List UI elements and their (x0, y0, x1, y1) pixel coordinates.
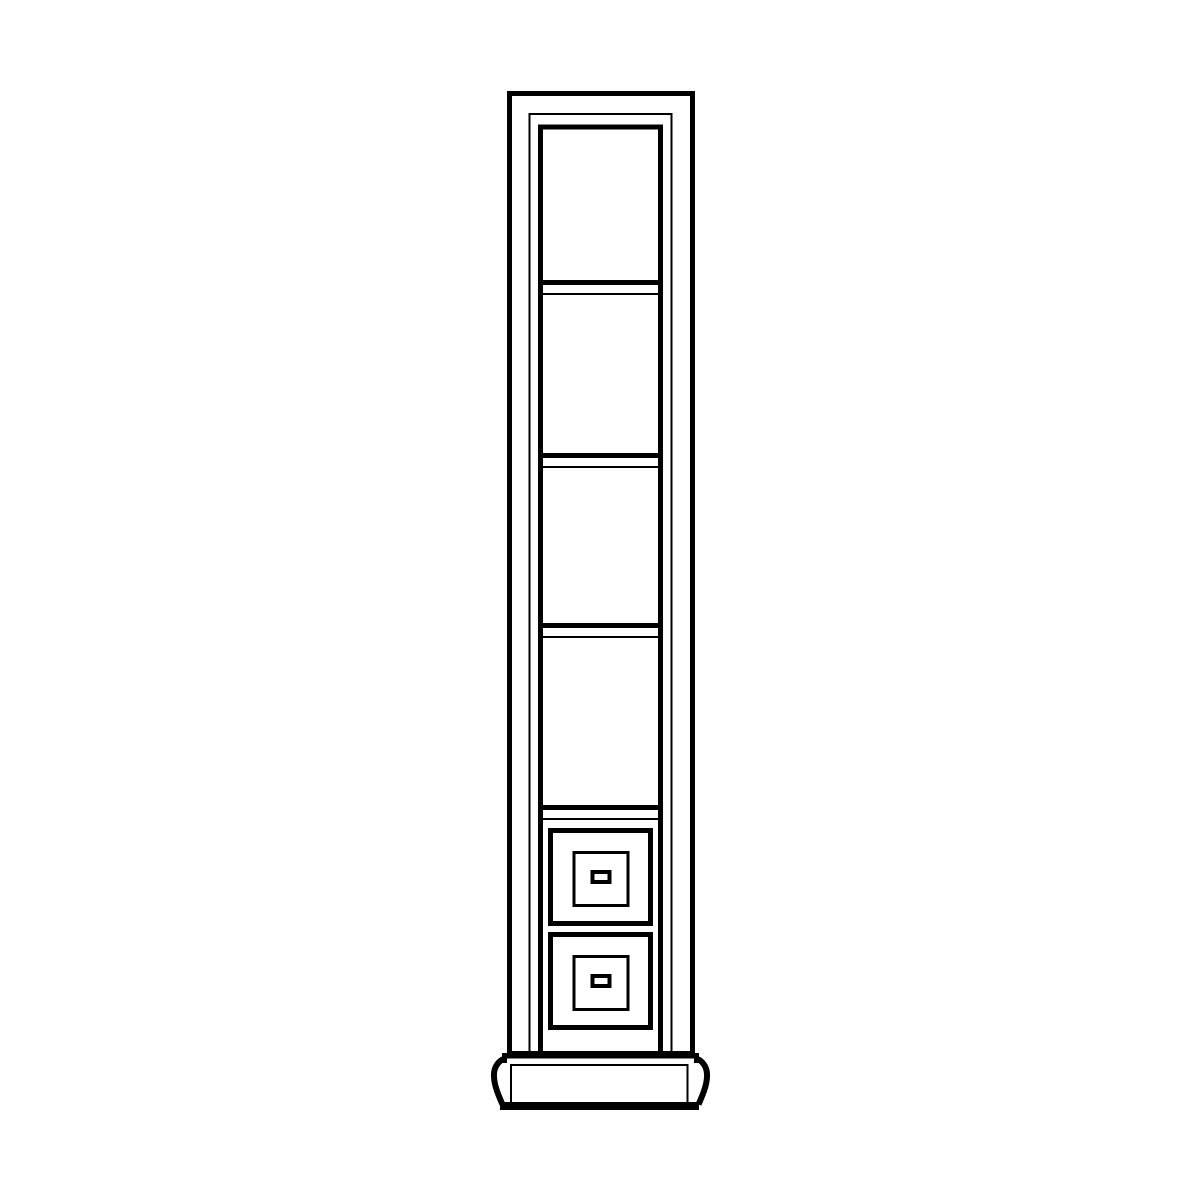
illustration-canvas (0, 0, 1200, 1200)
base-lip-right-ear (694, 1053, 699, 1063)
base-top-lip (502, 1053, 699, 1059)
bookcase-line-drawing (0, 0, 1200, 1200)
base-lip-left-ear (502, 1053, 507, 1063)
base-bottom-bar (500, 1102, 699, 1110)
background (0, 0, 1200, 1200)
